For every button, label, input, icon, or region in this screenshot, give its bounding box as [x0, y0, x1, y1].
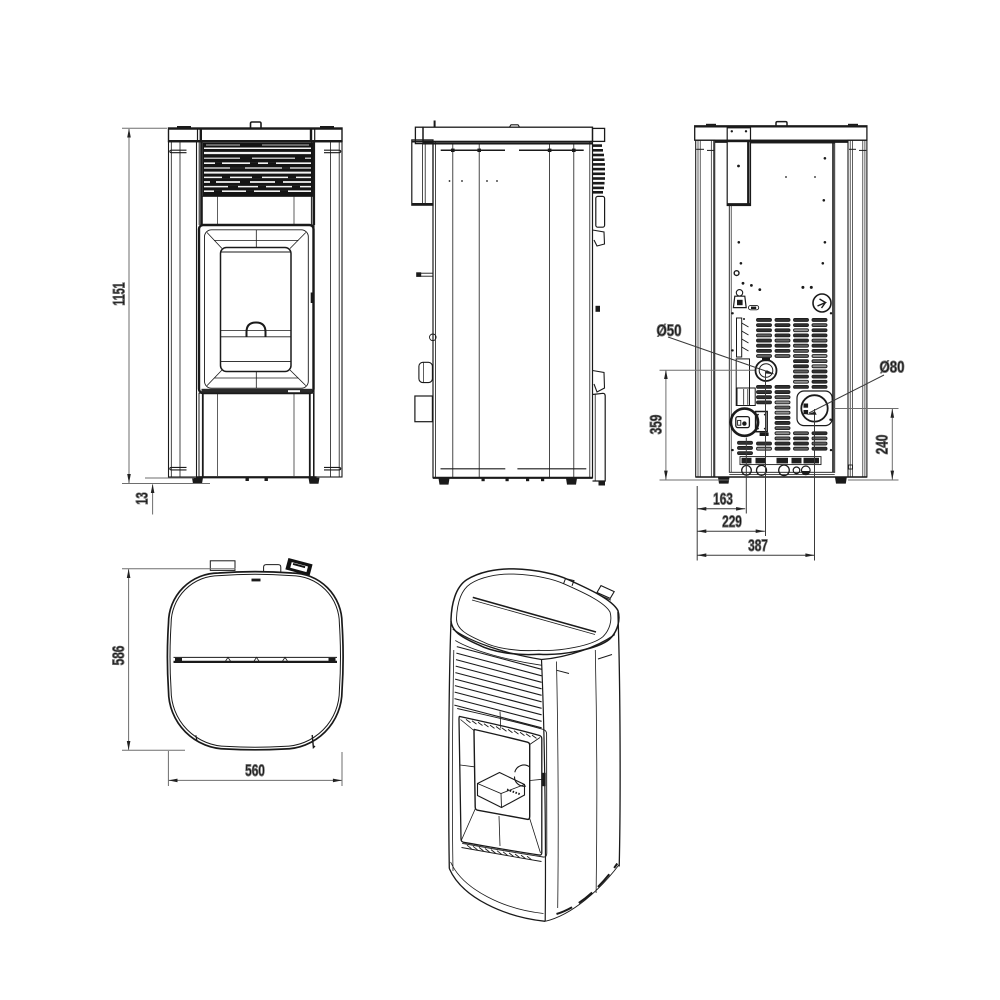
svg-text:560: 560 — [245, 762, 265, 781]
svg-text:Ø50: Ø50 — [656, 322, 681, 341]
svg-text:359: 359 — [648, 415, 667, 435]
svg-text:1151: 1151 — [110, 282, 129, 305]
svg-text:13: 13 — [133, 492, 152, 504]
svg-text:387: 387 — [748, 537, 768, 556]
svg-text:240: 240 — [874, 435, 893, 455]
svg-text:586: 586 — [110, 646, 129, 666]
svg-text:229: 229 — [722, 513, 742, 532]
svg-text:Ø80: Ø80 — [879, 358, 904, 377]
svg-text:163: 163 — [713, 491, 733, 510]
